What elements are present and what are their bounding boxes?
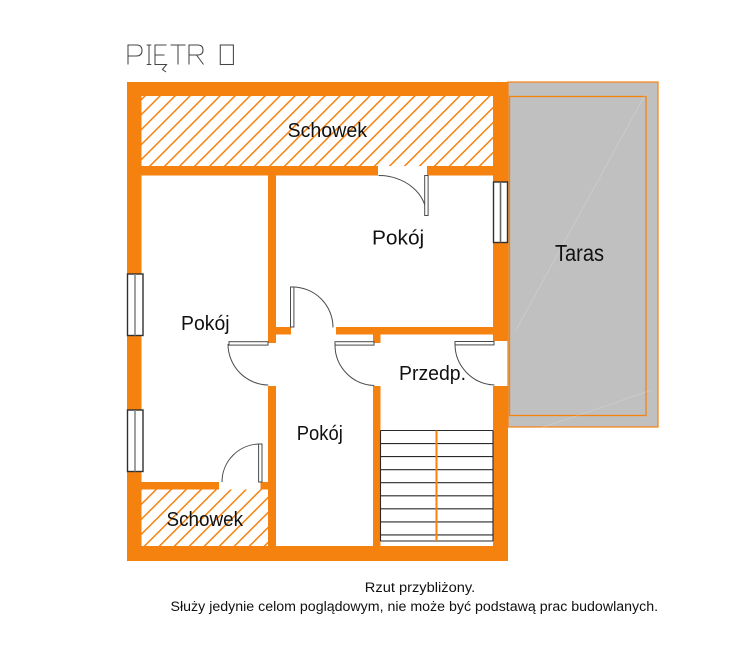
svg-text:Schowek: Schowek: [288, 120, 368, 142]
svg-text:Taras: Taras: [555, 240, 604, 266]
svg-text:Pokój: Pokój: [181, 313, 230, 335]
svg-text:Pokój: Pokój: [372, 228, 424, 250]
svg-text:Rzut przybliżony.: Rzut przybliżony.: [365, 580, 475, 595]
svg-text:Przedp.: Przedp.: [399, 363, 466, 385]
svg-text:Schowek: Schowek: [167, 509, 244, 531]
svg-text:Pokój: Pokój: [297, 423, 343, 445]
svg-text:Służy jedynie celom poglądowym: Służy jedynie celom poglądowym, nie może…: [171, 599, 659, 614]
